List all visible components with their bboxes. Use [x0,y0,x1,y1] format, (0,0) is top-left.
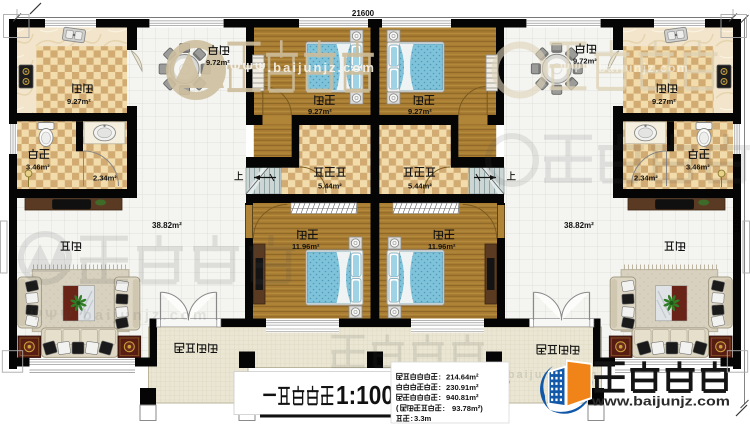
svg-text:214.64m²: 214.64m² [446,372,479,381]
svg-text::: : [443,404,446,413]
svg-text:11.96m²: 11.96m² [292,242,320,251]
svg-text:230.91m²: 230.91m² [446,383,479,392]
svg-text:9.72m²: 9.72m² [573,57,597,66]
svg-text:9.27m²: 9.27m² [652,97,676,106]
svg-text::: : [411,414,414,423]
svg-text:5.44m²: 5.44m² [408,182,432,191]
svg-text:ΨΨΨ.baijunjz.com: ΨΨΨ.baijunjz.com [30,307,209,324]
svg-text::: : [439,393,442,402]
svg-text:38.82m²: 38.82m² [564,221,594,230]
svg-text:11520: 11520 [732,210,742,233]
svg-text:2.34m²: 2.34m² [93,174,117,183]
svg-text:21600: 21600 [352,9,375,18]
svg-text:3.46m²: 3.46m² [26,163,50,172]
svg-text:9.72m²: 9.72m² [206,58,230,67]
svg-text:3.3m: 3.3m [414,414,432,423]
svg-text:38.82m²: 38.82m² [152,221,182,230]
svg-text:93.78m²): 93.78m²) [452,404,483,413]
svg-text:9.27m²: 9.27m² [308,107,332,116]
svg-text:www.baijunjz.com: www.baijunjz.com [591,394,730,409]
svg-text::: : [439,383,442,392]
svg-text:11.96m²: 11.96m² [428,242,456,251]
svg-text:3.46m²: 3.46m² [686,163,710,172]
svg-text::: : [439,372,442,381]
svg-text:940.81m²: 940.81m² [446,393,479,402]
svg-text:ΨΨΨ.baijunjz.com: ΨΨΨ.baijunjz.com [230,60,376,75]
svg-text:5.44m²: 5.44m² [318,182,342,191]
svg-text:9.27m²: 9.27m² [408,107,432,116]
svg-text:1:100: 1:100 [336,380,394,410]
svg-text:2.34m²: 2.34m² [634,174,658,183]
svg-text:9.27m²: 9.27m² [67,97,91,106]
